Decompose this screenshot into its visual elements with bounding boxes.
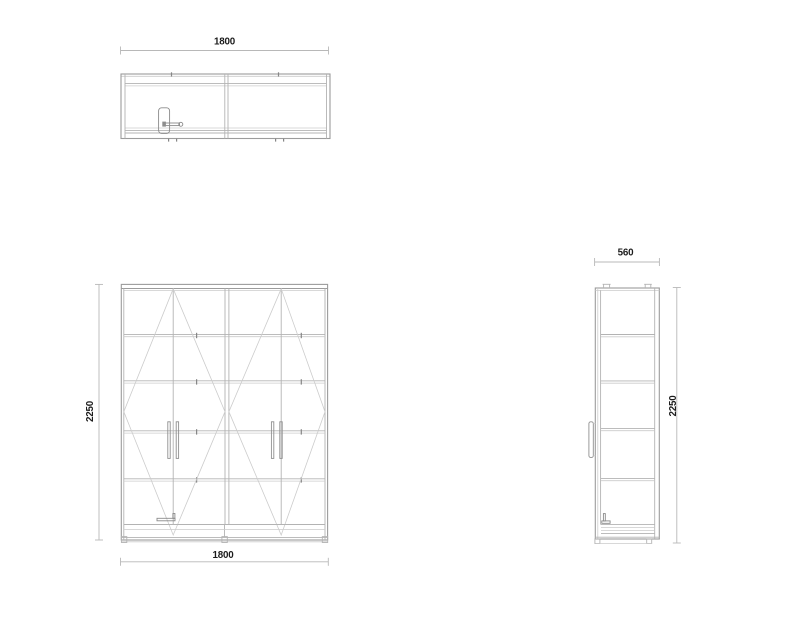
technical-drawing-page: 1800 2250 <box>0 0 787 617</box>
lock-pin <box>603 514 605 521</box>
side-view-outline <box>595 288 659 539</box>
side-view-height-dimension: 2250 <box>668 288 681 544</box>
door-handle <box>589 422 593 458</box>
dimension-label-side-depth: 560 <box>618 248 634 259</box>
lock-bar <box>157 518 175 521</box>
dimension-label-front-height: 2250 <box>85 400 96 422</box>
lock-fitting-detail <box>159 108 183 134</box>
lock-arm <box>164 123 180 126</box>
front-view-height-dimension: 2250 <box>85 284 103 540</box>
dimension-label-top-width: 1800 <box>214 37 236 48</box>
lock-nut <box>162 122 166 127</box>
wardrobe-three-view-drawing: 1800 2250 <box>0 0 787 617</box>
front-view-width-dimension: 1800 <box>121 550 329 566</box>
shelf-pins <box>197 333 302 483</box>
door-handle <box>176 422 178 459</box>
front-view: 2250 1800 <box>85 284 328 565</box>
foot <box>647 539 652 544</box>
door-handle <box>168 422 170 459</box>
door-swing-diamond <box>124 289 225 535</box>
side-view: 560 2250 <box>589 248 681 544</box>
base-plinth <box>595 524 659 543</box>
lock-pin <box>173 514 175 519</box>
dimension-label-front-width: 1800 <box>213 550 235 561</box>
lock-body <box>159 108 170 134</box>
top-view-width-dimension: 1800 <box>121 37 329 55</box>
door-handle <box>271 422 273 459</box>
foot <box>595 539 600 544</box>
door-swing-diamond <box>229 289 325 535</box>
bottom-lock-fitting <box>602 514 610 524</box>
dimension-label-side-height: 2250 <box>668 395 679 417</box>
door-handle-profile <box>589 422 595 458</box>
side-view-depth-dimension: 560 <box>595 248 660 266</box>
shelf-lines <box>124 334 325 481</box>
lock-base <box>602 521 610 523</box>
shelf-lines <box>601 335 655 481</box>
top-brackets <box>603 284 652 288</box>
top-view: 1800 <box>121 37 331 142</box>
